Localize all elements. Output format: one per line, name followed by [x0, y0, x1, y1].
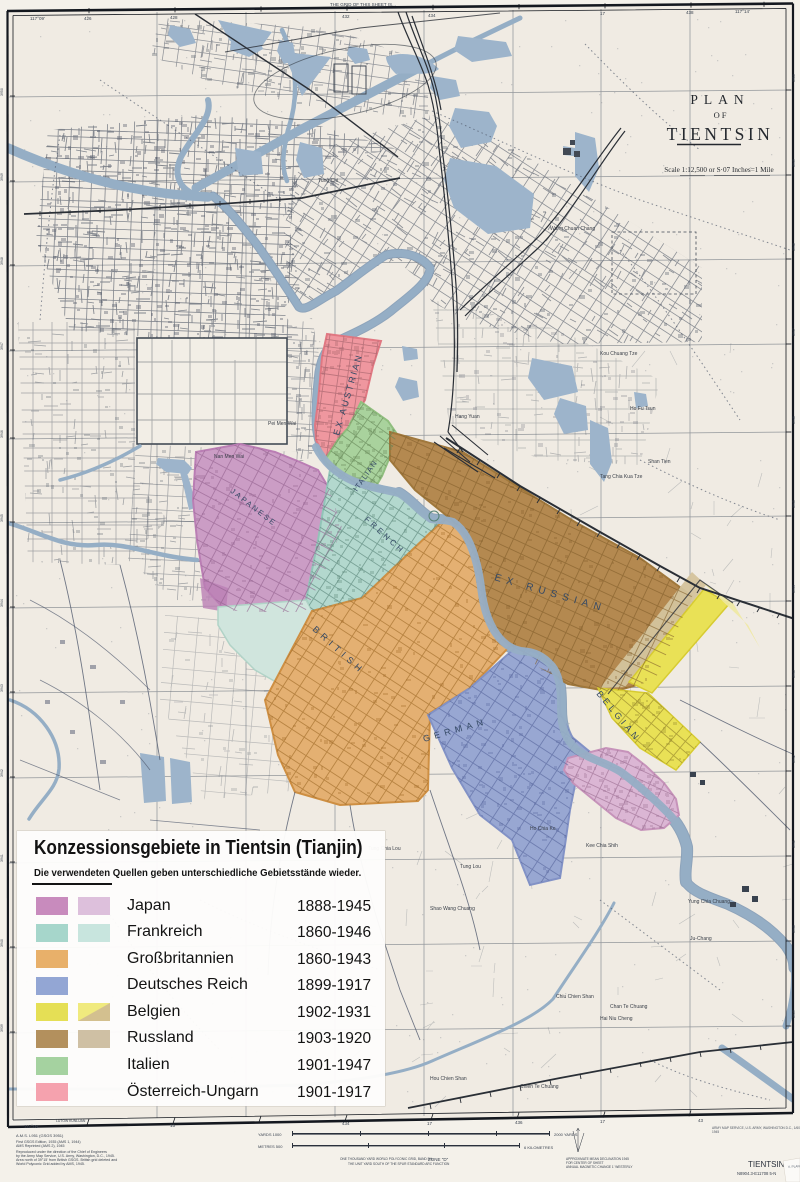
svg-text:3948: 3948: [792, 243, 796, 251]
svg-text:434: 434: [342, 1121, 350, 1126]
svg-text:426: 426: [84, 16, 92, 21]
svg-text:3945: 3945: [0, 514, 4, 522]
svg-text:3941: 3941: [792, 840, 796, 848]
svg-text:3939: 3939: [792, 1010, 796, 1018]
svg-text:117°09': 117°09': [30, 16, 45, 21]
svg-text:17: 17: [600, 1119, 606, 1124]
svg-text:3947: 3947: [792, 328, 796, 336]
svg-text:117°14': 117°14': [735, 9, 750, 14]
svg-text:THE UNIT YARD SOUTH OF THE SPU: THE UNIT YARD SOUTH OF THE SPUR STANDARD…: [348, 1162, 450, 1166]
svg-text:6 KILOMETRES: 6 KILOMETRES: [524, 1145, 553, 1150]
svg-text:3940: 3940: [0, 939, 4, 947]
svg-text:3949: 3949: [792, 159, 796, 167]
svg-text:1945: 1945: [712, 1130, 719, 1134]
svg-text:3939: 3939: [0, 1024, 4, 1032]
svg-text:LUTOW KUNLUAN: LUTOW KUNLUAN: [56, 1119, 86, 1123]
svg-text:N8904.3-E11708 5-N: N8904.3-E11708 5-N: [737, 1171, 776, 1176]
svg-text:THE GRID OF THIS SHEET IS...: THE GRID OF THIS SHEET IS...: [330, 2, 396, 7]
svg-text:434: 434: [428, 13, 436, 18]
svg-text:3943: 3943: [792, 670, 796, 678]
svg-text:3948: 3948: [0, 257, 4, 265]
svg-text:TIENTSIN: TIENTSIN: [748, 1160, 785, 1169]
svg-text:3944: 3944: [0, 599, 4, 607]
svg-text:17: 17: [600, 11, 606, 16]
svg-text:3943: 3943: [0, 684, 4, 692]
svg-text:438: 438: [686, 10, 694, 15]
svg-text:436: 436: [515, 1120, 523, 1125]
svg-text:15: 15: [170, 1123, 176, 1128]
svg-text:17: 17: [427, 1121, 433, 1126]
svg-text:ONE THOUSAND YARD WORLD POLYCO: ONE THOUSAND YARD WORLD POLYCONIC GRID, …: [340, 1157, 433, 1161]
svg-text:3950: 3950: [0, 88, 4, 96]
svg-text:ANNUAL MAGNETIC CHANGE 1' WEST: ANNUAL MAGNETIC CHANGE 1' WESTERLY: [566, 1165, 633, 1169]
svg-text:AMS Reprinted (AMS 2), 1945: AMS Reprinted (AMS 2), 1945: [16, 1144, 65, 1148]
svg-text:3946: 3946: [0, 430, 4, 438]
svg-text:43: 43: [698, 1118, 704, 1123]
svg-text:V. PLAN: V. PLAN: [788, 1164, 800, 1169]
svg-text:3942: 3942: [0, 769, 4, 777]
svg-text:3944: 3944: [792, 585, 796, 593]
svg-text:3942: 3942: [792, 755, 796, 763]
svg-text:428: 428: [170, 15, 178, 20]
svg-text:3949: 3949: [0, 173, 4, 181]
svg-text:METRES 500: METRES 500: [258, 1144, 283, 1149]
svg-text:3946: 3946: [792, 416, 796, 424]
svg-text:World Polyconic Grid added by: World Polyconic Grid added by AMS, 1945.: [16, 1162, 85, 1166]
svg-text:3941: 3941: [0, 854, 4, 862]
svg-text:3940: 3940: [792, 925, 796, 933]
svg-text:117°09': 117°09': [24, 1124, 39, 1129]
svg-text:A.M.S. L951 (GSGS 3951): A.M.S. L951 (GSGS 3951): [16, 1133, 64, 1138]
svg-text:432: 432: [342, 14, 350, 19]
svg-text:3950: 3950: [792, 74, 796, 82]
svg-text:3947: 3947: [0, 342, 4, 350]
svg-text:YARDS 1000: YARDS 1000: [258, 1132, 282, 1137]
svg-text:ARMY MAP SERVICE, U.S. ARMY, W: ARMY MAP SERVICE, U.S. ARMY, WASHINGTON …: [712, 1126, 800, 1130]
svg-text:3945: 3945: [792, 500, 796, 508]
